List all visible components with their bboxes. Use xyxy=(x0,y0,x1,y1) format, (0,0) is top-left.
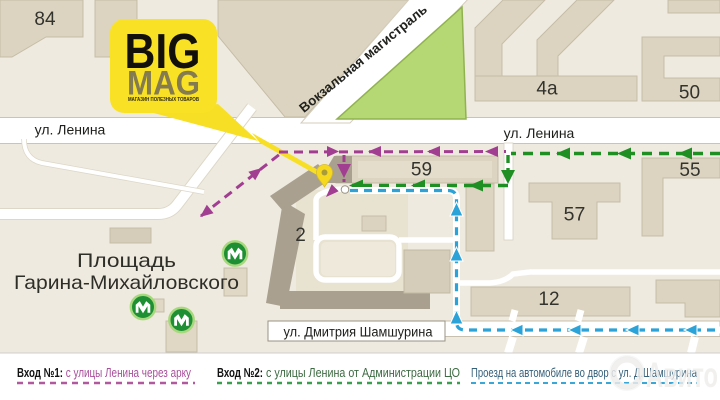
svg-text:59: 59 xyxy=(411,160,432,181)
svg-text:84: 84 xyxy=(34,9,56,30)
svg-text:55: 55 xyxy=(679,160,700,181)
svg-text:Авито: Авито xyxy=(646,356,718,395)
svg-text:12: 12 xyxy=(538,289,559,310)
svg-text:Вход №2: с улицы Ленина от Ад: Вход №2: с улицы Ленина от Администрации… xyxy=(217,365,460,380)
svg-text:Гарина-Михайловского: Гарина-Михайловского xyxy=(14,272,239,294)
svg-text:ул. Ленина: ул. Ленина xyxy=(35,122,106,138)
svg-text:4а: 4а xyxy=(536,79,558,100)
svg-text:Вход №1: с улицы Ленина через: Вход №1: с улицы Ленина через арку xyxy=(17,365,191,380)
svg-text:57: 57 xyxy=(564,204,586,226)
svg-text:50: 50 xyxy=(679,83,700,104)
svg-text:2: 2 xyxy=(295,225,306,246)
svg-text:МАГАЗИН ПОЛЕЗНЫХ ТОВАРОВ: МАГАЗИН ПОЛЕЗНЫХ ТОВАРОВ xyxy=(128,97,199,103)
svg-text:ул. Ленина: ул. Ленина xyxy=(504,125,575,141)
svg-text:ул. Дмитрия Шамшурина: ул. Дмитрия Шамшурина xyxy=(284,325,433,340)
svg-text:Площадь: Площадь xyxy=(77,250,176,272)
